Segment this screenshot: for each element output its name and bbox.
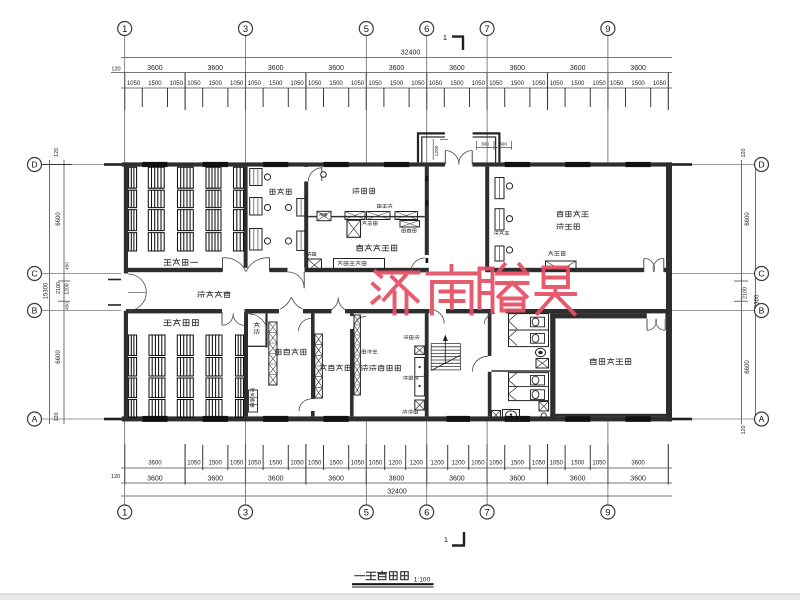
svg-text:3600: 3600 [389, 475, 405, 482]
svg-text:C: C [758, 269, 764, 279]
svg-text:3600: 3600 [208, 475, 224, 482]
svg-text:2100: 2100 [56, 282, 62, 294]
svg-text:1050: 1050 [653, 81, 667, 87]
svg-text:3600: 3600 [449, 65, 465, 72]
svg-text:1050: 1050 [248, 461, 262, 467]
svg-text:A: A [759, 414, 765, 424]
svg-text:3600: 3600 [570, 65, 586, 72]
svg-text:6: 6 [424, 506, 429, 517]
svg-text:B: B [759, 306, 765, 316]
svg-text:3600: 3600 [510, 65, 526, 72]
svg-text:1200: 1200 [431, 461, 445, 467]
svg-text:1050: 1050 [127, 81, 141, 87]
svg-text:3600: 3600 [268, 475, 284, 482]
svg-text:3600: 3600 [630, 65, 646, 72]
svg-text:1500: 1500 [269, 461, 283, 467]
svg-text:1050: 1050 [550, 81, 564, 87]
svg-text:D: D [31, 160, 37, 170]
svg-text:5: 5 [364, 23, 369, 34]
svg-text:3600: 3600 [147, 65, 163, 72]
svg-text:1500: 1500 [329, 81, 343, 87]
svg-text:1050: 1050 [471, 461, 485, 467]
svg-text:1500: 1500 [390, 81, 404, 87]
svg-text:7: 7 [484, 506, 489, 517]
svg-text:1050: 1050 [532, 461, 546, 467]
svg-text:B: B [32, 306, 38, 316]
svg-text:1: 1 [443, 33, 447, 42]
svg-text:1: 1 [444, 535, 448, 544]
svg-text:15300: 15300 [44, 282, 50, 299]
svg-text:120: 120 [741, 426, 747, 435]
svg-text:1050: 1050 [592, 81, 606, 87]
svg-text:3: 3 [243, 23, 248, 34]
svg-text:450: 450 [65, 262, 70, 270]
svg-text:3600: 3600 [147, 475, 163, 482]
svg-text:3: 3 [243, 506, 248, 517]
svg-text:32400: 32400 [387, 489, 407, 496]
svg-text:1050: 1050 [411, 81, 425, 87]
svg-text:1050: 1050 [429, 81, 443, 87]
svg-text:3600: 3600 [389, 65, 405, 72]
svg-text:32400: 32400 [401, 50, 421, 57]
svg-text:450: 450 [65, 302, 70, 310]
svg-text:3600: 3600 [631, 461, 645, 467]
svg-text:1500: 1500 [511, 81, 525, 87]
svg-text:5: 5 [364, 506, 369, 517]
svg-text:D: D [758, 160, 764, 170]
svg-text:1: 1 [122, 23, 127, 34]
svg-text:1050: 1050 [290, 81, 304, 87]
svg-text:1500: 1500 [571, 81, 585, 87]
svg-text:1050: 1050 [368, 81, 382, 87]
svg-text:1050: 1050 [290, 461, 304, 467]
svg-text:9: 9 [605, 23, 610, 34]
svg-text:1500: 1500 [209, 461, 223, 467]
svg-text:1:100: 1:100 [414, 577, 431, 584]
svg-text:1050: 1050 [187, 461, 201, 467]
svg-text:300: 300 [499, 142, 507, 148]
svg-text:1200: 1200 [389, 461, 403, 467]
svg-text:1200: 1200 [410, 461, 424, 467]
svg-text:C: C [31, 269, 37, 279]
svg-text:6: 6 [424, 23, 429, 34]
svg-text:1200: 1200 [452, 461, 466, 467]
svg-text:3600: 3600 [328, 475, 344, 482]
svg-text:9: 9 [605, 506, 610, 517]
svg-text:1050: 1050 [472, 81, 486, 87]
svg-text:1050: 1050 [489, 461, 503, 467]
svg-text:1050: 1050 [550, 461, 564, 467]
svg-text:1050: 1050 [489, 81, 503, 87]
svg-text:A: A [32, 414, 38, 424]
svg-text:3600: 3600 [268, 65, 284, 72]
svg-text:1200: 1200 [65, 283, 71, 294]
svg-text:2100: 2100 [743, 287, 749, 299]
svg-text:120: 120 [54, 148, 60, 157]
svg-text:1500: 1500 [450, 81, 464, 87]
svg-text:6600: 6600 [745, 360, 751, 374]
svg-text:120: 120 [111, 474, 120, 480]
svg-text:1050: 1050 [187, 81, 201, 87]
svg-text:1500: 1500 [148, 81, 162, 87]
svg-text:1050: 1050 [532, 81, 546, 87]
svg-text:3600: 3600 [630, 475, 646, 482]
svg-text:1050: 1050 [308, 81, 322, 87]
svg-text:3600: 3600 [570, 475, 586, 482]
svg-text:1200: 1200 [434, 145, 440, 156]
svg-text:3600: 3600 [148, 461, 162, 467]
svg-text:6600: 6600 [56, 212, 62, 226]
svg-text:1500: 1500 [269, 81, 283, 87]
svg-text:1050: 1050 [308, 461, 322, 467]
svg-text:1050: 1050 [248, 81, 262, 87]
svg-text:1050: 1050 [369, 461, 383, 467]
svg-text:300: 300 [481, 142, 489, 148]
svg-text:3600: 3600 [510, 475, 526, 482]
svg-text:1050: 1050 [230, 81, 244, 87]
svg-text:3600: 3600 [328, 65, 344, 72]
svg-text:120: 120 [111, 66, 120, 72]
svg-text:3600: 3600 [449, 475, 465, 482]
svg-text:7: 7 [484, 23, 489, 34]
svg-text:1500: 1500 [329, 461, 343, 467]
svg-text:6600: 6600 [56, 350, 62, 364]
svg-text:6600: 6600 [745, 212, 751, 226]
svg-text:1500: 1500 [631, 81, 645, 87]
svg-text:1050: 1050 [230, 461, 244, 467]
svg-text:3600: 3600 [208, 65, 224, 72]
svg-text:120: 120 [741, 149, 747, 158]
svg-text:1050: 1050 [170, 81, 184, 87]
svg-text:1050: 1050 [351, 461, 365, 467]
svg-text:1500: 1500 [209, 81, 223, 87]
svg-text:1500: 1500 [571, 461, 585, 467]
svg-text:1050: 1050 [592, 461, 606, 467]
svg-text:1050: 1050 [610, 81, 624, 87]
svg-text:1050: 1050 [351, 81, 365, 87]
svg-text:1: 1 [122, 506, 127, 517]
svg-text:1500: 1500 [511, 461, 525, 467]
svg-text:120: 120 [54, 413, 60, 422]
